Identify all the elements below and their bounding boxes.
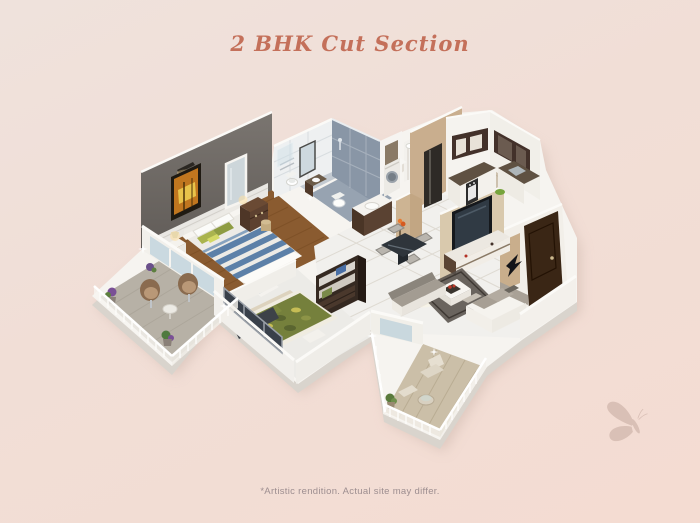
- page: 2 BHK Cut Section *Artistic rendition. A…: [0, 0, 700, 523]
- green-bowl: [495, 189, 505, 195]
- disclaimer-text: *Artistic rendition. Actual site may dif…: [0, 486, 700, 497]
- floor-plan-render: [0, 0, 700, 523]
- wicker-basket: [261, 220, 271, 232]
- butterfly-icon: [602, 401, 648, 445]
- page-title: 2 BHK Cut Section: [0, 31, 700, 56]
